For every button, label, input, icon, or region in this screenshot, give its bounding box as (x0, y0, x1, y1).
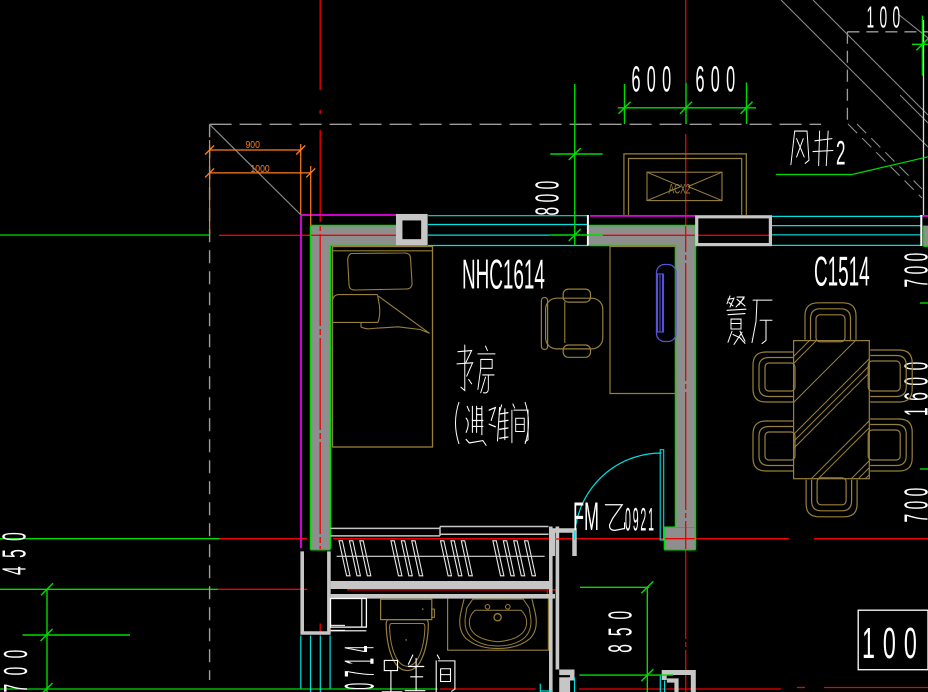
svg-text:2: 2 (836, 134, 845, 172)
svg-text:600: 600 (696, 59, 742, 99)
svg-text:100: 100 (867, 2, 906, 36)
svg-text:900: 900 (246, 139, 260, 151)
svg-text:C1514: C1514 (814, 248, 870, 294)
svg-text:850: 850 (603, 603, 639, 653)
svg-text:100: 100 (862, 619, 925, 668)
svg-text:FM: FM (573, 494, 599, 539)
svg-text:1000: 1000 (251, 163, 270, 175)
svg-text:0714: 0714 (335, 640, 383, 690)
svg-text:0921: 0921 (625, 502, 656, 538)
svg-text:700: 700 (0, 641, 35, 692)
svg-text:600: 600 (632, 59, 678, 99)
svg-text:450: 450 (0, 524, 33, 575)
svg-text:800: 800 (530, 176, 566, 215)
svg-text:NHC1614: NHC1614 (462, 251, 545, 297)
svg-text:700: 700 (899, 248, 928, 287)
svg-text:ACX2: ACX2 (669, 182, 691, 197)
svg-text:700: 700 (899, 483, 928, 522)
svg-text:1600: 1600 (899, 355, 928, 416)
